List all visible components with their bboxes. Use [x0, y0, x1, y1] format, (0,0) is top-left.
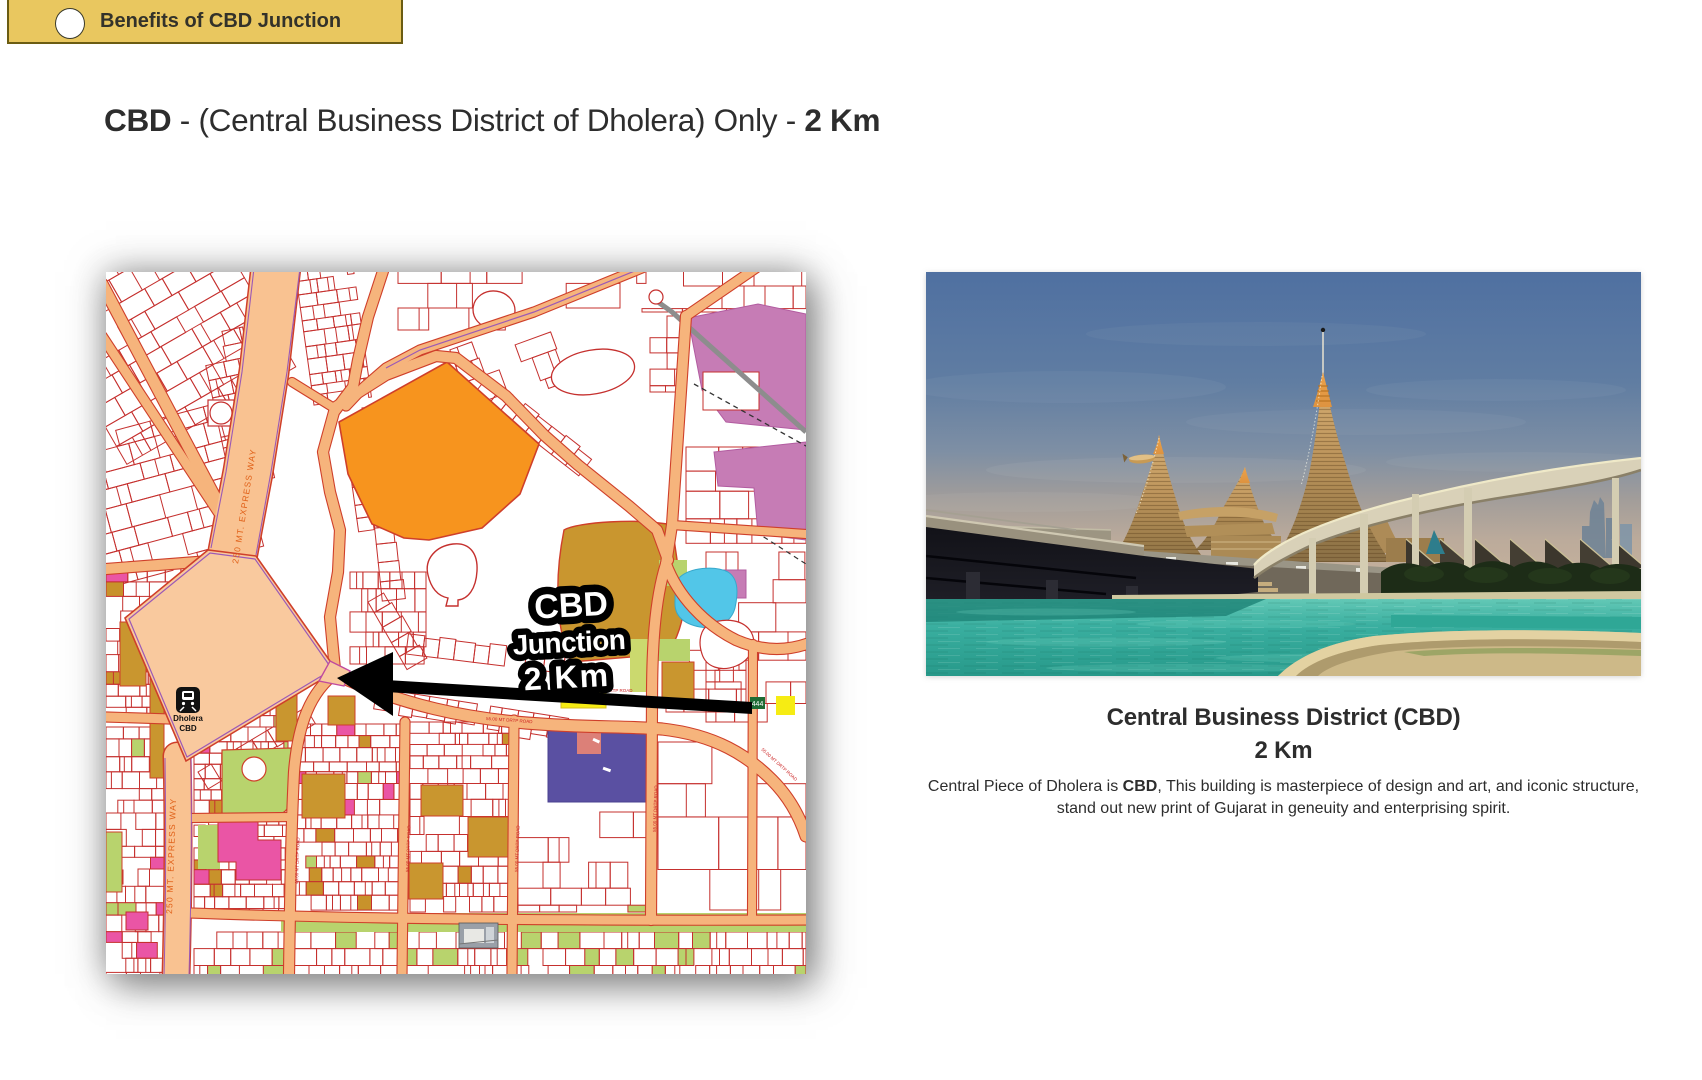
svg-text:CBD: CBD [533, 585, 609, 627]
svg-text:CBD: CBD [179, 724, 197, 733]
svg-text:444: 444 [752, 701, 764, 708]
svg-text:2 Km: 2 Km [523, 657, 611, 697]
svg-text:Dholera: Dholera [173, 714, 203, 723]
svg-text:Junction: Junction [512, 624, 626, 661]
